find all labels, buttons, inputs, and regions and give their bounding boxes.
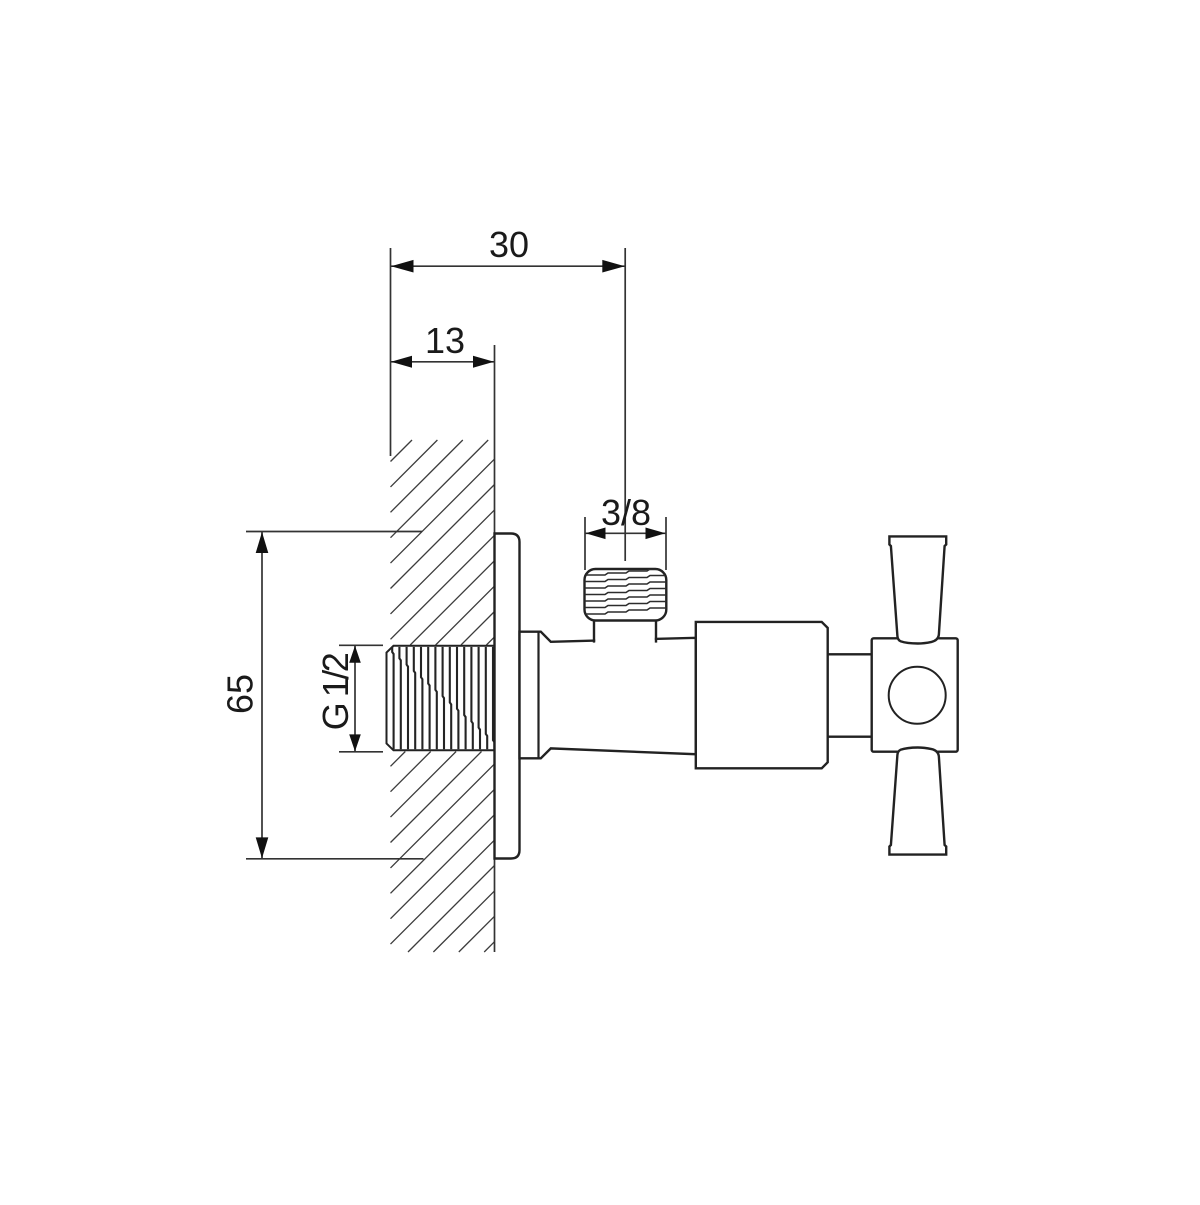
svg-text:65: 65	[220, 674, 261, 714]
svg-text:G 1/2: G 1/2	[315, 653, 356, 730]
svg-text:13: 13	[425, 320, 465, 361]
svg-text:3/8: 3/8	[601, 492, 651, 533]
svg-text:30: 30	[489, 224, 529, 265]
